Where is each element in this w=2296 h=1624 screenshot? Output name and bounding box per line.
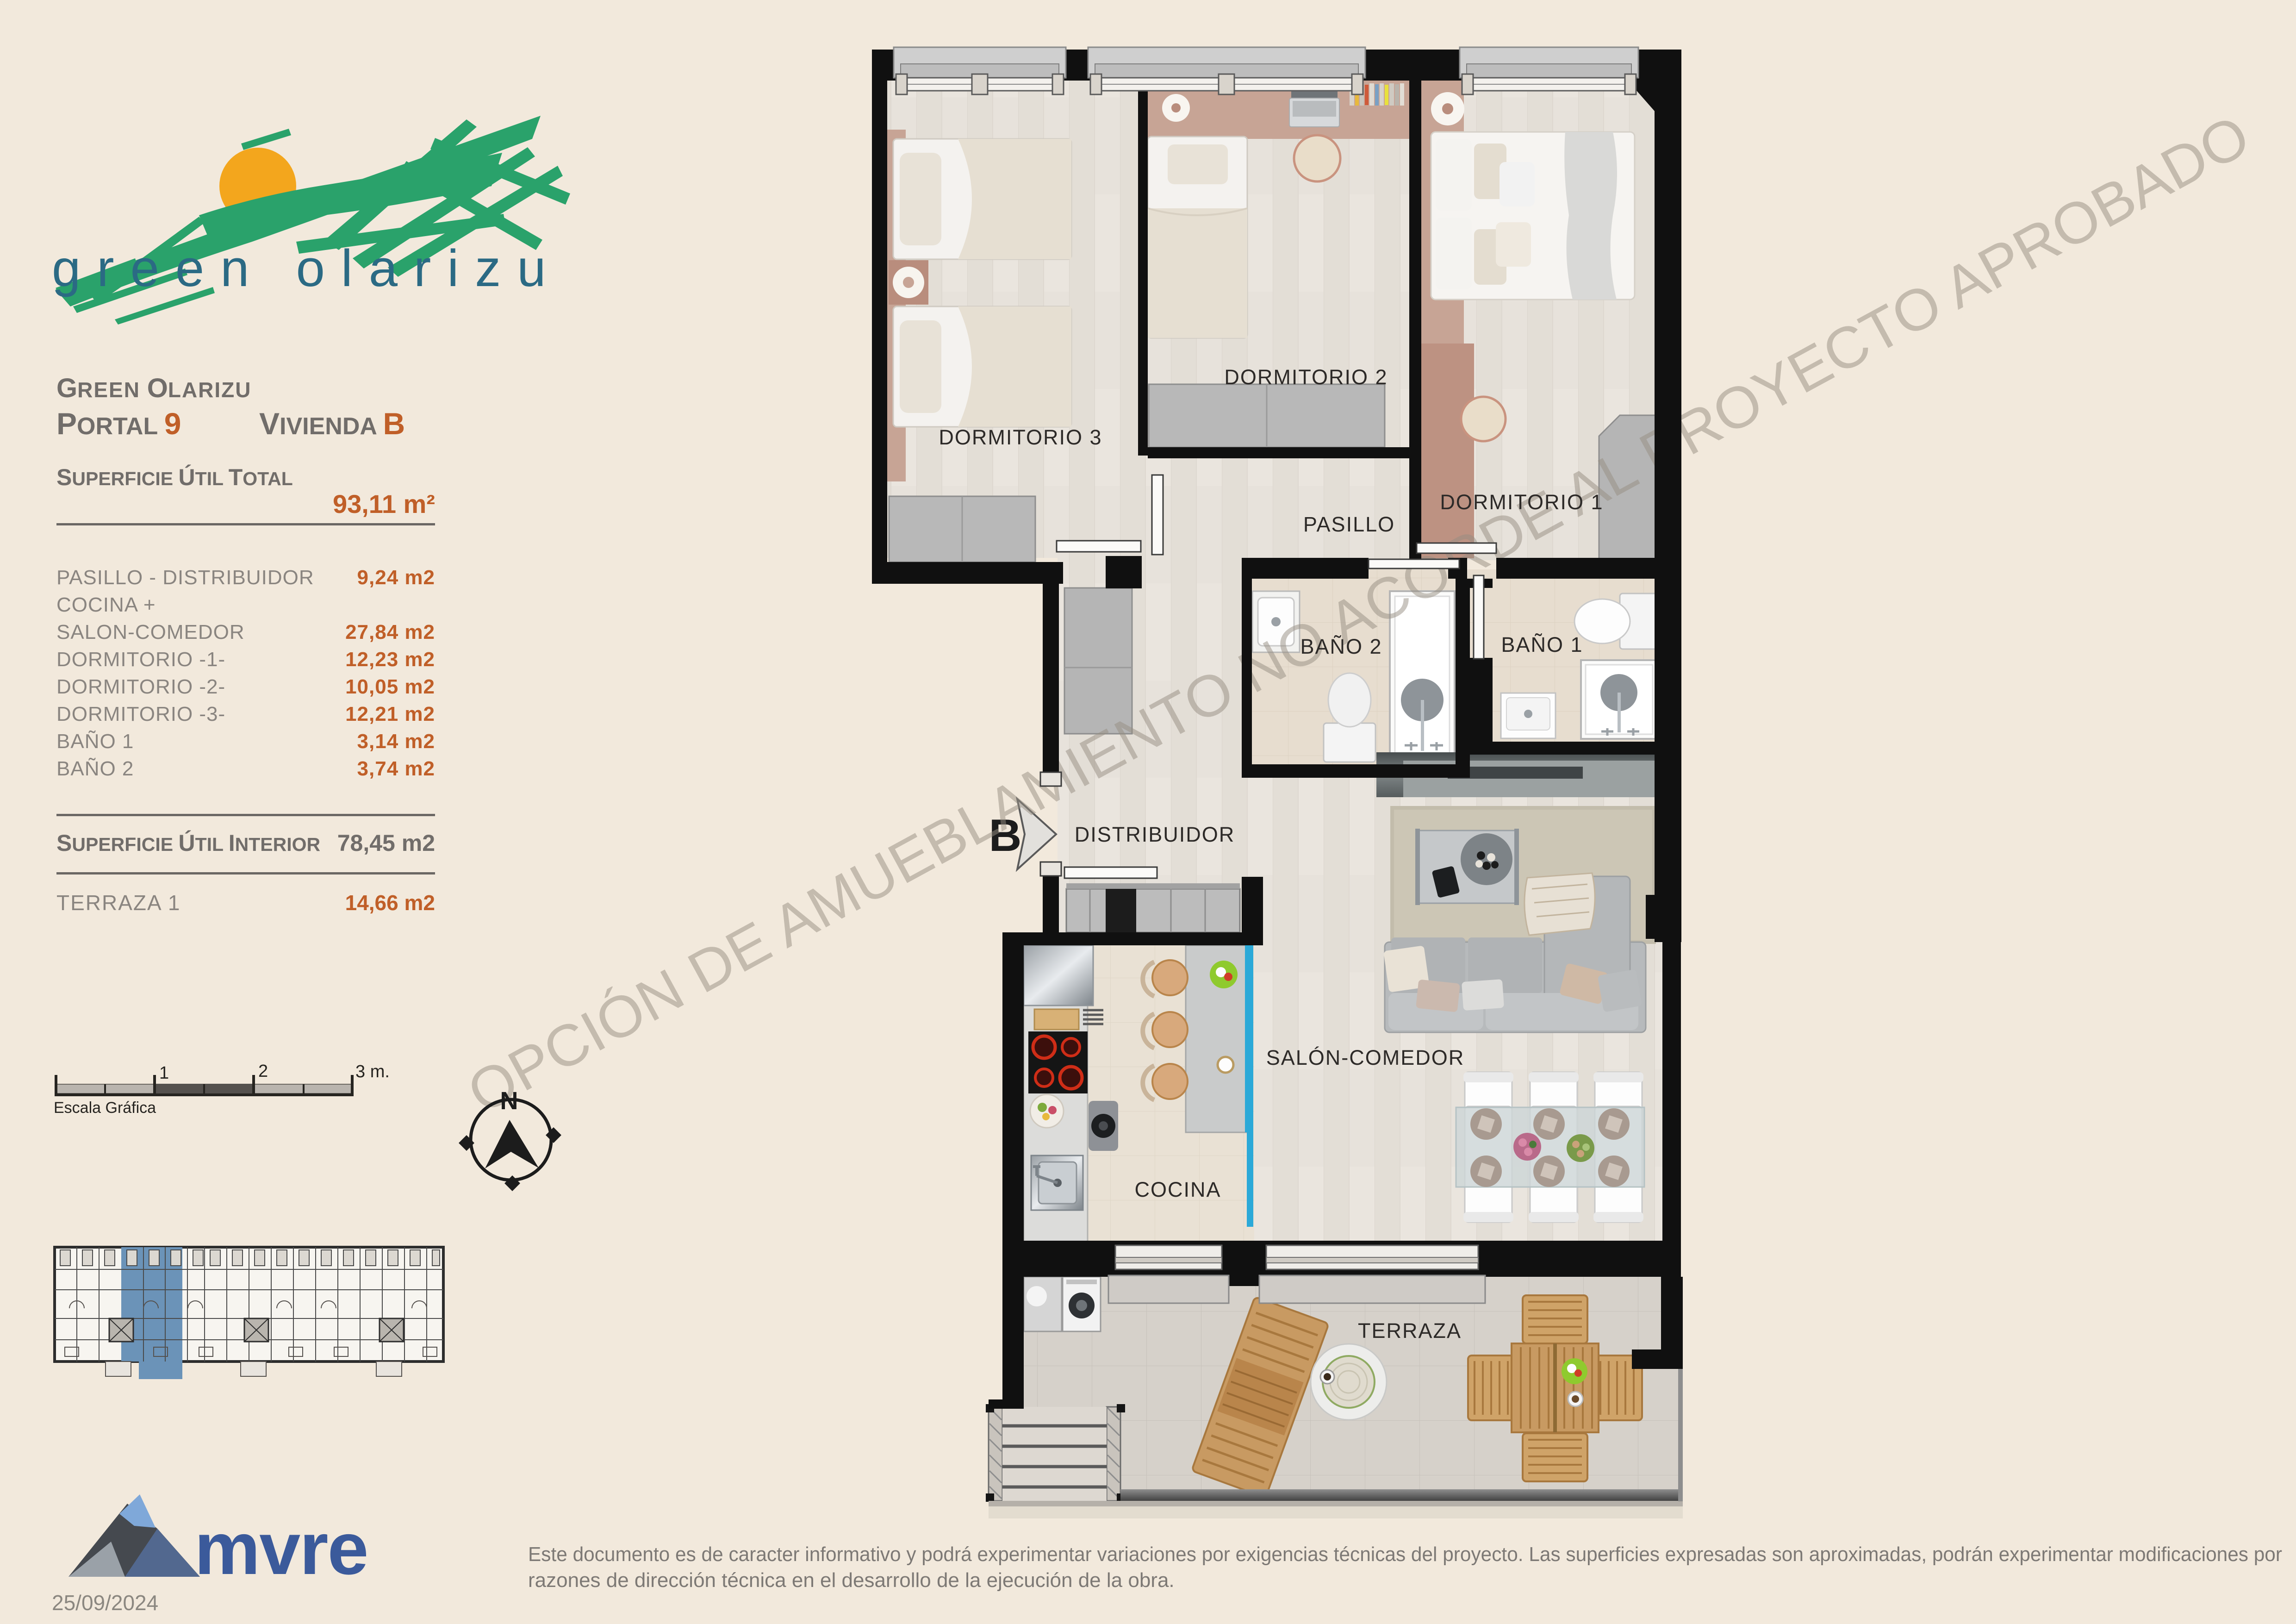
svg-text:1: 1 [159, 1063, 169, 1083]
svg-text:BAÑO 2: BAÑO 2 [1300, 635, 1382, 658]
svg-text:SUPERFICIE ÚTIL INTERIOR: SUPERFICIE ÚTIL INTERIOR [56, 830, 320, 856]
svg-text:DORMITORIO -2-: DORMITORIO -2- [56, 675, 225, 698]
svg-text:DORMITORIO 1: DORMITORIO 1 [1440, 490, 1603, 514]
svg-text:SUPERFICIE ÚTIL TOTAL: SUPERFICIE ÚTIL TOTAL [56, 464, 293, 490]
svg-text:12,21 m2: 12,21 m2 [345, 703, 435, 725]
svg-text:SALON-COMEDOR: SALON-COMEDOR [56, 621, 245, 643]
svg-text:DORMITORIO 3: DORMITORIO 3 [939, 425, 1102, 449]
svg-text:78,45 m2: 78,45 m2 [337, 830, 435, 856]
svg-text:3,14 m2: 3,14 m2 [357, 730, 435, 753]
svg-text:14,66 m2: 14,66 m2 [345, 891, 435, 915]
svg-text:COCINA: COCINA [1134, 1178, 1221, 1201]
svg-text:mvre: mvre [194, 1507, 368, 1590]
svg-text:93,11 m²: 93,11 m² [333, 489, 435, 518]
svg-text:SALÓN-COMEDOR: SALÓN-COMEDOR [1266, 1046, 1465, 1069]
svg-text:PASILLO - DISTRIBUIDOR: PASILLO - DISTRIBUIDOR [56, 566, 314, 589]
svg-text:3 m.: 3 m. [355, 1062, 390, 1081]
svg-text:green olarizu: green olarizu [52, 239, 562, 297]
svg-text:9,24 m2: 9,24 m2 [357, 566, 435, 589]
svg-text:DORMITORIO 2: DORMITORIO 2 [1224, 365, 1388, 389]
svg-text:DISTRIBUIDOR: DISTRIBUIDOR [1075, 823, 1235, 846]
svg-text:BAÑO 1: BAÑO 1 [56, 730, 134, 753]
svg-text:27,84 m2: 27,84 m2 [345, 621, 435, 643]
svg-text:razones de dirección técnica e: razones de dirección técnica en el desar… [528, 1569, 1175, 1592]
svg-text:COCINA +: COCINA + [56, 593, 156, 616]
svg-text:25/09/2024: 25/09/2024 [52, 1591, 158, 1615]
svg-text:Escala Gráfica: Escala Gráfica [54, 1099, 156, 1117]
svg-text:TERRAZA: TERRAZA [1358, 1319, 1462, 1343]
svg-text:10,05 m2: 10,05 m2 [345, 675, 435, 698]
svg-text:12,23 m2: 12,23 m2 [345, 648, 435, 671]
svg-text:2: 2 [258, 1062, 268, 1081]
svg-text:Este documento es de caracter: Este documento es de caracter informativ… [528, 1543, 2282, 1566]
svg-text:N: N [500, 1087, 518, 1115]
svg-text:GREEN OLARIZU: GREEN OLARIZU [56, 373, 251, 403]
svg-text:TERRAZA 1: TERRAZA 1 [56, 891, 181, 915]
svg-text:3,74 m2: 3,74 m2 [357, 757, 435, 780]
svg-text:BAÑO 2: BAÑO 2 [56, 757, 134, 780]
svg-text:BAÑO 1: BAÑO 1 [1501, 633, 1583, 656]
svg-text:DORMITORIO -3-: DORMITORIO -3- [56, 703, 225, 725]
svg-text:DORMITORIO -1-: DORMITORIO -1- [56, 648, 225, 671]
svg-text:PASILLO: PASILLO [1303, 512, 1395, 536]
